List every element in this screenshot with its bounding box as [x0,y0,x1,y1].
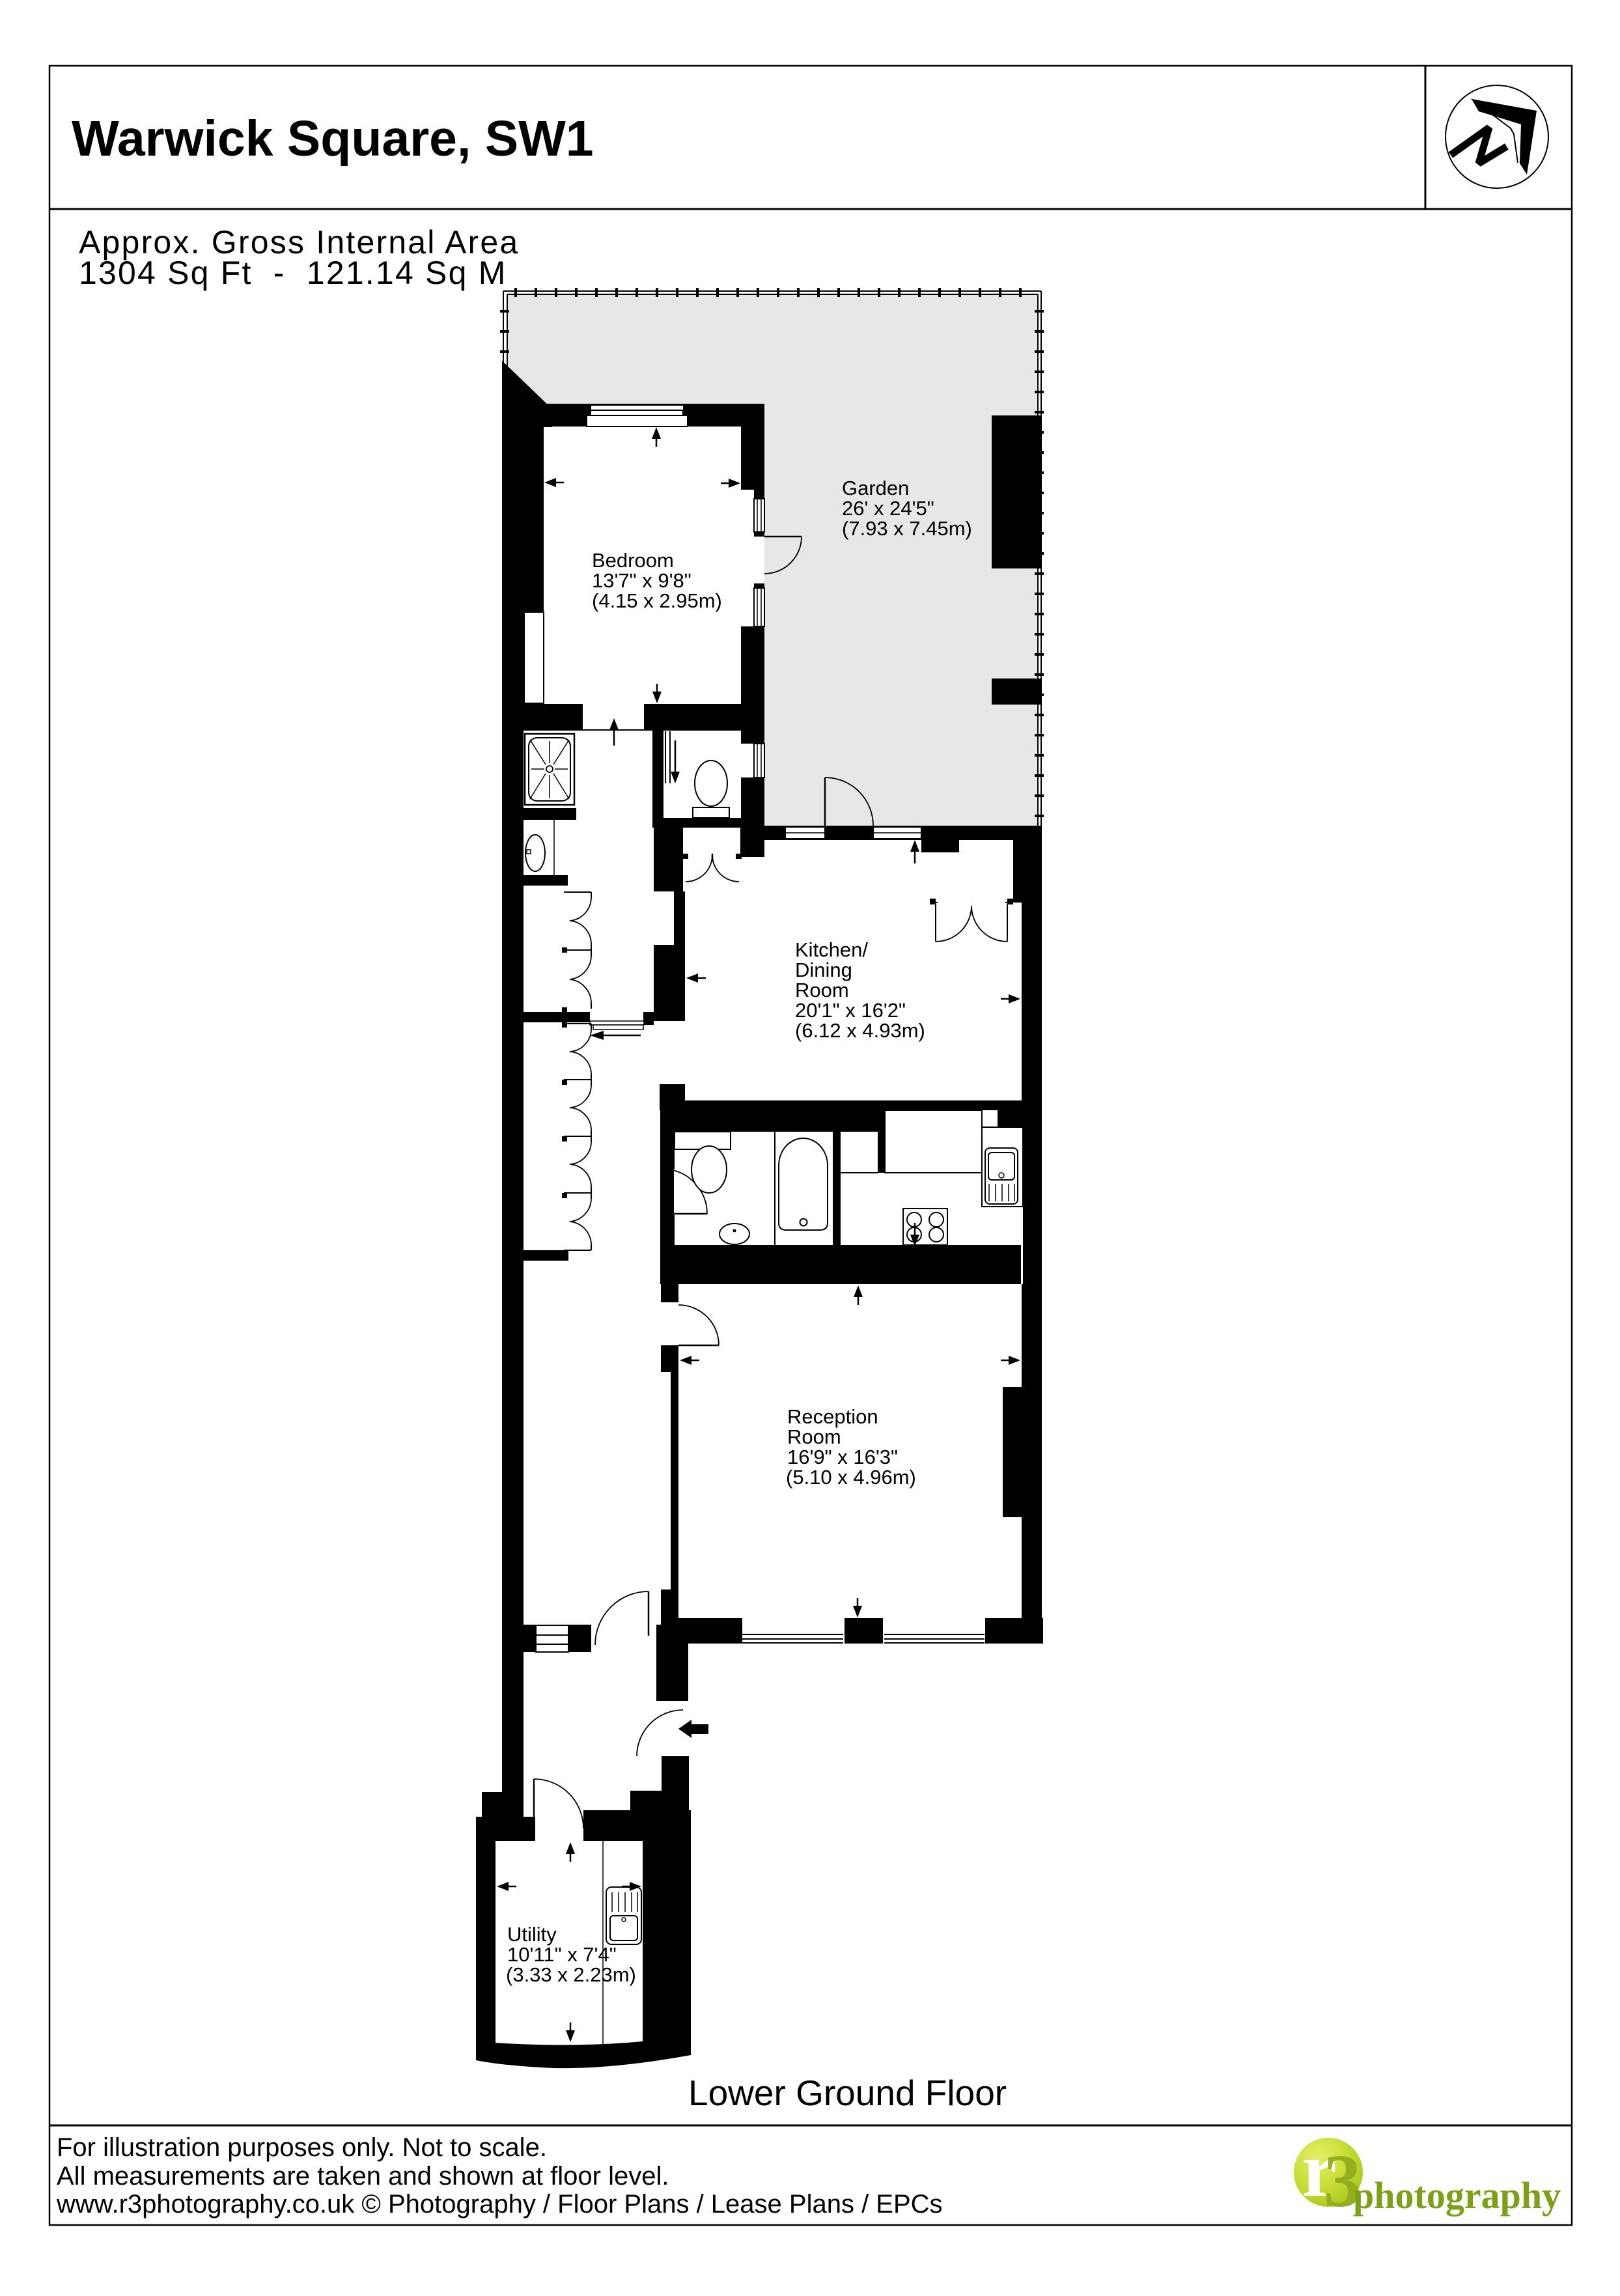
svg-text:Reception: Reception [787,1405,878,1428]
svg-text:Room: Room [787,1425,841,1448]
svg-text:16'9" x 16'3": 16'9" x 16'3" [787,1446,898,1468]
svg-text:(7.93 x 7.45m): (7.93 x 7.45m) [842,517,972,540]
svg-text:20'1" x 16'2": 20'1" x 16'2" [795,999,906,1022]
svg-text:(3.33 x 2.23m): (3.33 x 2.23m) [506,1963,636,1986]
svg-text:(5.10 x 4.96m): (5.10 x 4.96m) [786,1466,916,1489]
svg-text:13'7" x 9'8": 13'7" x 9'8" [592,569,691,592]
svg-text:(4.15 x 2.95m): (4.15 x 2.95m) [592,589,722,612]
svg-text:For illustration purposes only: For illustration purposes only. Not to s… [57,2133,547,2162]
svg-text:26' x 24'5": 26' x 24'5" [842,497,934,520]
svg-text:www.r3photography.co.uk © Phot: www.r3photography.co.uk © Photography / … [56,2190,943,2219]
svg-text:Dining: Dining [795,959,852,981]
svg-text:1304 Sq Ft - 121.14 Sq M: 1304 Sq Ft - 121.14 Sq M [79,255,507,291]
svg-text:photography: photography [1353,2174,1561,2217]
svg-text:Bedroom: Bedroom [592,549,674,572]
svg-text:Room: Room [795,979,849,1001]
svg-text:Lower Ground Floor: Lower Ground Floor [688,2073,1007,2113]
svg-text:All measurements are taken and: All measurements are taken and shown at … [57,2162,669,2191]
svg-text:Garden: Garden [842,477,909,499]
svg-text:Utility: Utility [507,1923,557,1946]
svg-text:Warwick Square, SW1: Warwick Square, SW1 [72,111,594,167]
svg-text:(6.12 x 4.93m): (6.12 x 4.93m) [795,1019,925,1042]
svg-text:Kitchen/: Kitchen/ [795,938,868,961]
svg-text:10'11" x 7'4": 10'11" x 7'4" [507,1943,617,1966]
